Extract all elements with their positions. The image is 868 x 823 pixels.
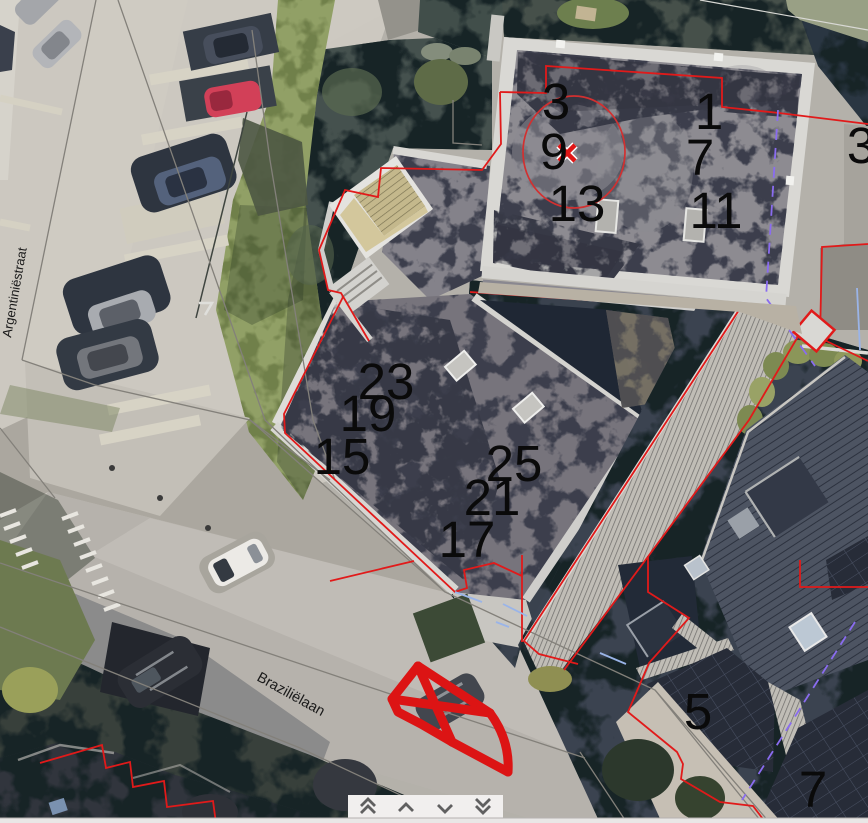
svg-text:7: 7 <box>799 761 827 818</box>
svg-text:11: 11 <box>690 182 743 239</box>
svg-text:7: 7 <box>686 129 714 186</box>
svg-text:9: 9 <box>540 123 568 180</box>
svg-text:3: 3 <box>542 73 570 130</box>
svg-text:3: 3 <box>847 117 868 174</box>
svg-text:5: 5 <box>684 683 712 740</box>
svg-text:15: 15 <box>314 428 371 485</box>
svg-text:13: 13 <box>549 175 606 232</box>
svg-text:17: 17 <box>439 511 496 568</box>
